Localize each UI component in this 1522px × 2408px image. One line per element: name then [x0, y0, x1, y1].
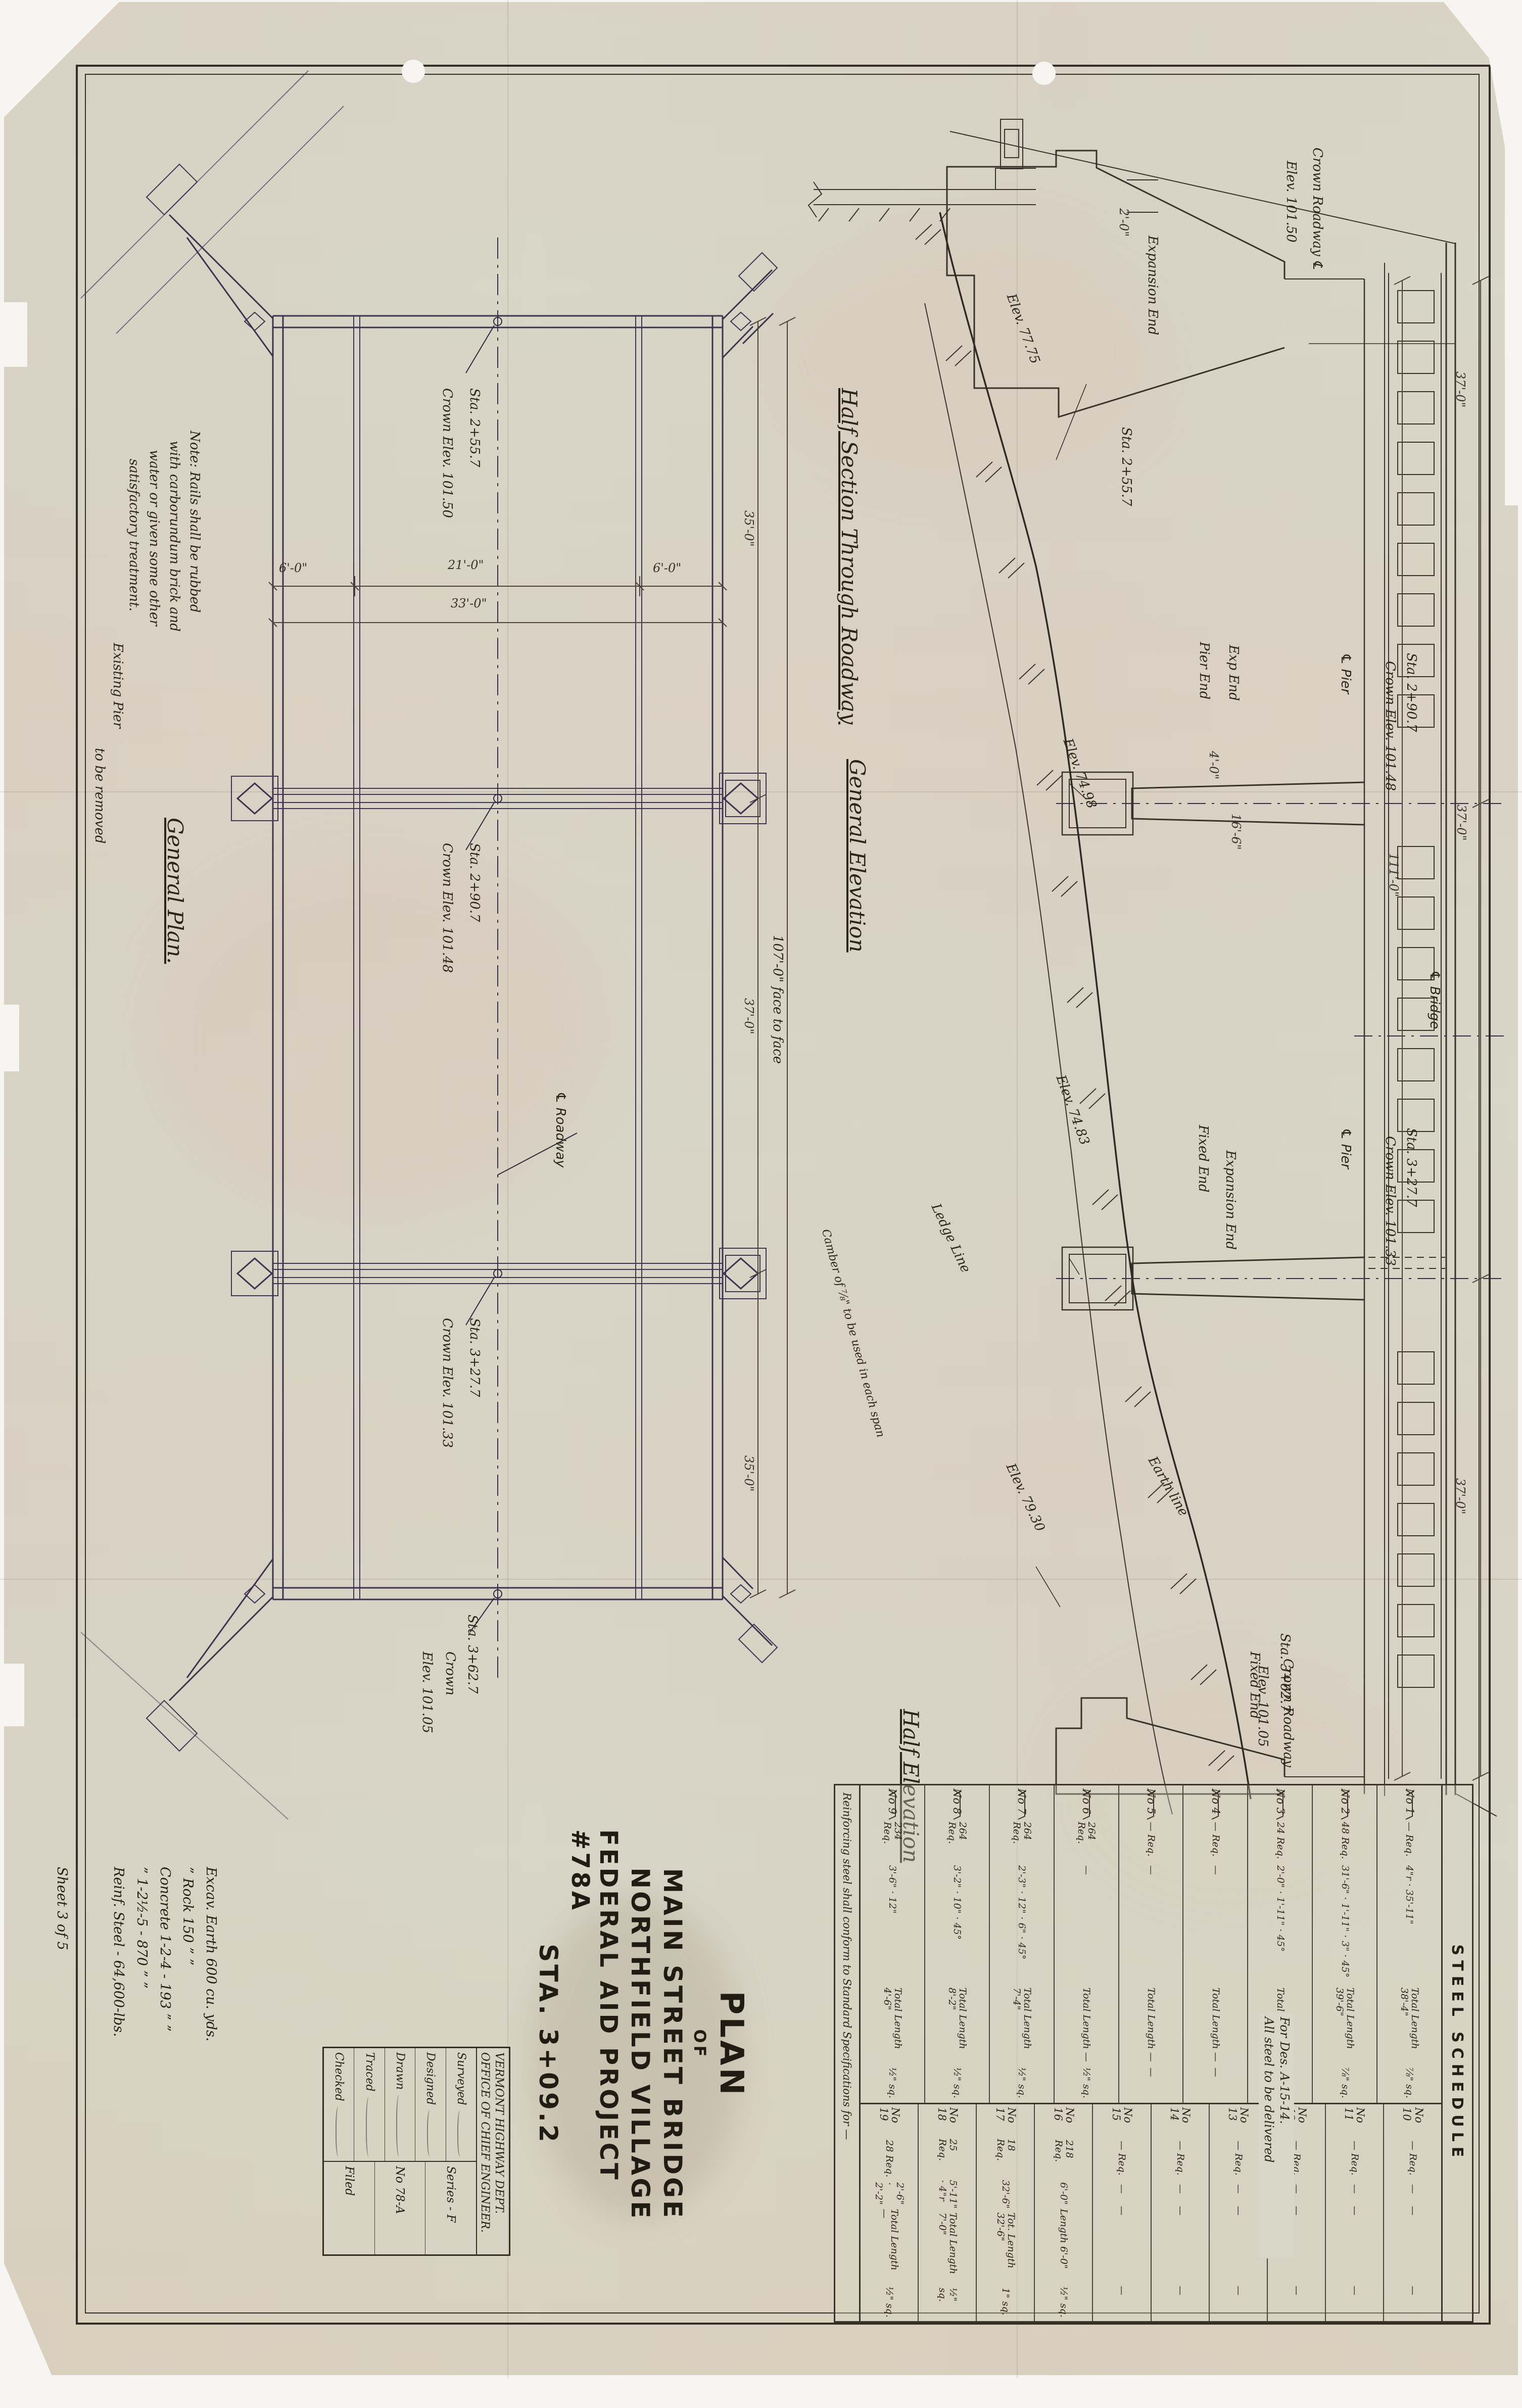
quantity-line: ” Rock 150 ” ” [180, 1867, 196, 2130]
agency-header: VERMONT HIGHWAY DEPT. OFFICE OF CHIEF EN… [476, 2048, 509, 2254]
bar-dimensions: 32'-6" [1000, 2180, 1011, 2209]
steel-schedule-row: No 19 28 Req. 2'-6" · 2'-2" Total Length… [861, 2104, 918, 2321]
plan-crown4-elev: Elev. 101.05 [419, 1651, 434, 1733]
bar-dimensions: — [1233, 2184, 1244, 2202]
agency-row-label: Traced [363, 2052, 376, 2092]
bar-number: No 11 [1343, 2107, 1366, 2137]
bar-size: — [1233, 2286, 1244, 2318]
steel-schedule-row: No 15 — Req. — — — [1092, 2104, 1150, 2321]
bar-number: No 17 [994, 2107, 1017, 2135]
agency-row-label: Surveyed [455, 2052, 467, 2105]
bar-size: ½" sq. [884, 2287, 894, 2318]
punch-hole [1032, 62, 1056, 85]
bar-size: ½" sq. [887, 2067, 897, 2100]
agency-file-column: Series - F No 78-A Filed [324, 2162, 476, 2254]
plan-sta4: Sta. 3+62.7 [465, 1615, 479, 1694]
drawing-sheet: Note: Rails shall be rubbed with carboru… [0, 0, 1522, 2408]
steel-schedule-body: No 1 — Req. 4"r · 35'-11" Total Length 3… [861, 1785, 1441, 2321]
bar-total-length: — [1175, 2206, 1185, 2282]
bar-shape-icon [1339, 1788, 1350, 1821]
bar-quantity: 28 Req. [884, 2140, 894, 2178]
bar-total-length: — [1407, 2206, 1418, 2282]
bar-dimensions: 2'-3" · 12" · 6" · 45° [1016, 1865, 1027, 1984]
pier1-dim2: 16'-6" [1229, 814, 1242, 850]
bar-total-length: Total Length — [1210, 1988, 1221, 2063]
agency-row: Traced [354, 2048, 384, 2161]
left-abutment-sta: Sta. 2+55.7 [1119, 427, 1133, 506]
bar-quantity: 18 Req. [995, 2139, 1016, 2176]
delivery-note: For Des. A-15-14. All steel to be delive… [1259, 2013, 1294, 2258]
steel-schedule-row: No 10 — Req. — — — [1383, 2104, 1441, 2321]
bar-size: ½" sq. [952, 2067, 962, 2100]
bar-total-length: Tot. Length 32'-6" [995, 2212, 1016, 2284]
bar-total-length: Total Length — [1081, 1988, 1091, 2063]
plan-crown4: Crown [443, 1651, 457, 1695]
delivery-note-line1: For Des. A-15-14. [1276, 2017, 1292, 2254]
agency-row: Designed [415, 2048, 445, 2161]
elev-dim-span-bot: 37'-0" [1454, 1478, 1466, 1515]
bar-size: — [1117, 2286, 1127, 2318]
bar-size: — [1407, 2286, 1418, 2318]
steel-schedule-row: No 16 218 Req. 6'-0" Length 6'-0" ½" sq. [1034, 2104, 1092, 2321]
bar-dimensions: — [1117, 2184, 1127, 2202]
bar-shape-icon [1404, 1788, 1415, 1821]
bar-quantity: 25 Req. [937, 2139, 958, 2176]
bar-quantity: 264 Req. [1076, 1822, 1097, 1861]
steel-schedule-table: STEEL SCHEDULE No 1 — Req. 4"r · 35'-11"… [834, 1784, 1473, 2323]
general-elevation-drawing [773, 61, 1511, 1829]
steel-schedule-row: No 2 48 Req. 31'-6" · 1'-11" · 3" · 45° … [1312, 1785, 1376, 2103]
steel-schedule-row: No 17 18 Req. 32'-6" Tot. Length 32'-6" … [976, 2104, 1034, 2321]
bar-number: No 18 [936, 2107, 959, 2135]
bar-quantity: 264 Req. [1011, 1822, 1032, 1861]
bar-total-length: Total Length 4'-6" [882, 1988, 903, 2063]
steel-schedule-row: No 7 264 Req. 2'-3" · 12" · 6" · 45° Tot… [989, 1785, 1054, 2103]
bar-quantity: 264 Req. [946, 1822, 968, 1861]
plan-dim-span3: 35'-0" [742, 1455, 755, 1492]
plan-dim-roadway: 21'-0" [448, 559, 484, 572]
agency-row: Checked [324, 2048, 354, 2161]
bar-number: No 14 [1168, 2107, 1192, 2137]
pier1-sta: Sta. 2+90.7 [1404, 653, 1418, 732]
half-section-title: Half Section Through Roadway [837, 388, 860, 724]
general-plan-title: General Plan. [163, 818, 186, 964]
steel-schedule-title: STEEL SCHEDULE [1441, 1785, 1472, 2321]
bar-shape-icon [1016, 1788, 1027, 1821]
title-line-station: STA. 3+09.2 [534, 1944, 563, 2144]
bar-total-length: Total Length — [1146, 1988, 1156, 2063]
plan-dim-overall: 107'-0" face to face [770, 935, 784, 1064]
bar-quantity: — Req. [1404, 1822, 1415, 1861]
title-line-plan: PLAN [712, 1991, 750, 2098]
signature-squiggle [366, 2097, 373, 2157]
pier2-sta: Sta. 3+27.7 [1404, 1128, 1418, 1207]
agency-row-label: Checked [332, 2052, 345, 2101]
bar-total-length: Total Length 39'-6" [1334, 1988, 1355, 2063]
bar-quantity: — Req. [1146, 1822, 1156, 1861]
bar-dimensions: — [1081, 1865, 1091, 1984]
bar-dimensions: 4"r · 35'-11" [1404, 1865, 1415, 1984]
bar-number: No 19 [878, 2107, 901, 2136]
bar-quantity: — Req. [1175, 2141, 1185, 2180]
bar-dimensions: 31'-6" · 1'-11" · 3" · 45° [1340, 1865, 1350, 1984]
crown-roadway-top: Crown Roadway ℄ [1310, 148, 1324, 269]
bar-dimensions: — [1175, 2184, 1185, 2202]
plan-sta2: Sta. 2+90.7 [467, 843, 481, 922]
bar-dimensions: — [1407, 2184, 1418, 2202]
delivery-note-line2: All steel to be delivered [1261, 2017, 1276, 2254]
bar-dimensions: 5'-11" · 4"r [937, 2180, 958, 2209]
bar-size: ½" sq. [1058, 2287, 1069, 2318]
steel-schedule-row: No 11 — Req. — — — [1325, 2104, 1383, 2321]
bar-total-length: — [1233, 2206, 1244, 2282]
pier1-cl: ℄ Pier [1338, 653, 1352, 694]
bar-number: No 10 [1401, 2107, 1424, 2137]
bar-dimensions: 2'-6" · 2'-2" [873, 2182, 905, 2205]
agency-signature-rows: Surveyed Designed Drawn Traced C [324, 2048, 476, 2162]
bar-total-length: Total Length 7'-4" [1011, 1988, 1032, 2063]
bar-dimensions: — [1349, 2184, 1360, 2202]
bar-quantity: — Req. [1349, 2141, 1360, 2180]
bar-quantity: — Req. [1233, 2141, 1244, 2180]
bar-size: ⅞" sq. [1340, 2067, 1350, 2100]
punch-hole [402, 60, 425, 83]
title-block: PLAN OF MAIN STREET BRIDGE NORTHFIELD VI… [546, 1829, 738, 2259]
bar-dimensions: 6'-0" [1058, 2182, 1069, 2205]
plan-dim-curb-right: 6'-0" [653, 562, 681, 575]
bar-quantity: 218 Req. [1053, 2140, 1074, 2178]
title-line-village: NORTHFIELD VILLAGE [626, 1867, 655, 2221]
pier1-dim1: 4'-0" [1207, 751, 1220, 779]
rails-note-line1: Note: Rails shall be rubbed [187, 431, 201, 612]
bar-size: ⅞" sq. [1404, 2067, 1415, 2100]
agency-row: Surveyed [446, 2048, 476, 2161]
agency-rows: Surveyed Designed Drawn Traced C [324, 2048, 476, 2254]
agency-office: OFFICE OF CHIEF ENGINEER. [478, 2052, 492, 2250]
agency-row-label: Drawn [394, 2052, 406, 2090]
sheet-number-note: Sheet 3 of 5 [54, 1867, 70, 1950]
steel-schedule-row: No 14 — Req. — — — [1151, 2104, 1209, 2321]
steel-schedule-row: No 9 234 Req. 3'-6" · 12" Total Length 4… [861, 1785, 924, 2103]
plan-dim-width: 33'-0" [451, 597, 487, 610]
bar-quantity: — Req. [1407, 2141, 1418, 2180]
bar-size: — [1291, 2286, 1302, 2318]
rails-note-line3: water or given some other [147, 450, 161, 626]
agency-filed: Filed [324, 2162, 374, 2254]
bar-shape-icon [1274, 1788, 1286, 1821]
bar-total-length: — [1349, 2206, 1360, 2282]
quantity-line: ” 1-2½-5 - 870 ” ” [134, 1867, 149, 2130]
signature-squiggle [427, 2110, 434, 2157]
quantity-line: Excav. Earth 600 cu. yds. [203, 1867, 218, 2130]
plan-crown2: Crown Elev. 101.48 [440, 843, 454, 973]
quantity-line: Concrete 1-2-4 - 193 ” ” [157, 1867, 172, 2130]
plan-dim-span2: 37'-0" [742, 998, 755, 1034]
steel-schedule-row: No 1 — Req. 4"r · 35'-11" Total Length 3… [1376, 1785, 1441, 2103]
existing-pier-note-line1: Existing Pier [110, 643, 124, 728]
crown-roadway-top-elev: Elev. 101.50 [1283, 161, 1298, 243]
reinforcing-note: Reinforcing steel shall conform to Stand… [835, 1785, 861, 2321]
elev-dim-span-mid: 37'-0" [1455, 805, 1467, 841]
plan-sta1: Sta. 2+55.7 [467, 388, 481, 467]
edge-notch [0, 1664, 24, 1726]
torn-edge-right [1505, 0, 1522, 505]
plan-crown1: Crown Elev. 101.50 [440, 388, 454, 518]
bar-size: 1" sq. [1000, 2288, 1011, 2318]
bar-quantity: 234 Req. [882, 1822, 903, 1861]
pier2-cl: ℄ Pier [1338, 1128, 1352, 1169]
agency-row: Drawn [385, 2048, 415, 2161]
elev-dim-span-top: 37'-0" [1454, 371, 1466, 408]
bar-number: No 16 [1052, 2107, 1075, 2136]
plan-sta3: Sta. 3+27.7 [467, 1318, 481, 1397]
elev-dim-overall: 111'-0" [1387, 853, 1400, 897]
title-line-project: FEDERAL AID PROJECT #78A [566, 1829, 623, 2259]
bar-size: — [1349, 2286, 1360, 2318]
bar-shape-icon [1210, 1788, 1221, 1821]
signature-squiggle [396, 2095, 403, 2157]
agency-row-label: Designed [424, 2052, 437, 2105]
steel-schedule-row: No 6 264 Req. — Total Length — ½" sq. [1054, 1785, 1118, 2103]
steel-schedule-row: No 18 25 Req. 5'-11" · 4"r Total Length … [918, 2104, 976, 2321]
steel-schedule-row: No 8 264 Req. 3'-2" · 10" · 45° Total Le… [924, 1785, 989, 2103]
plan-cl-roadway: ℄ Roadway [553, 1092, 567, 1168]
bar-size: ½" sq. [1016, 2067, 1027, 2100]
signature-squiggle [457, 2110, 464, 2157]
pier2-end-left: Fixed End [1196, 1125, 1210, 1193]
bar-quantity: — Req. [1210, 1822, 1221, 1861]
bar-quantity: 48 Req. [1340, 1822, 1350, 1861]
steel-schedule-group-b: No 10 — Req. — — — No 11 — Req. — — — No… [861, 2104, 1441, 2321]
bar-shape-icon [887, 1788, 898, 1821]
bar-dimensions: — [1210, 1865, 1221, 1984]
steel-schedule-row: No 13 — Req. — — — [1209, 2104, 1267, 2321]
bar-total-length: Total Length 8'-2" [946, 1988, 968, 2063]
plan-dim-span1: 35'-0" [742, 510, 755, 547]
bar-total-length: Total Length 7'-0" [937, 2212, 958, 2284]
bar-shape-icon [952, 1788, 963, 1821]
rails-note-line2: with carborundum brick and [167, 441, 181, 632]
plan-crown3: Crown Elev. 101.33 [440, 1318, 454, 1448]
quantity-line: Reinf. Steel - 64,600-lbs. [111, 1867, 126, 2130]
bar-shape-icon [1081, 1788, 1092, 1821]
bar-quantity: — Req. [1117, 2141, 1127, 2180]
left-abutment-end-label: Expansion End [1145, 235, 1159, 335]
bar-size: — [1175, 2286, 1185, 2318]
bar-number: No 13 [1226, 2107, 1250, 2137]
steel-schedule-row: No 4 — Req. — Total Length — — [1182, 1785, 1247, 2103]
cl-bridge: ℄ Bridge [1427, 970, 1441, 1029]
quantity-lines: Excav. Earth 600 cu. yds.” Rock 150 ” ”C… [111, 1867, 218, 2130]
agency-dept: VERMONT HIGHWAY DEPT. [492, 2052, 506, 2250]
pier1-end-left: Pier End [1197, 642, 1211, 699]
bar-total-length: Total Length — [879, 2209, 900, 2283]
agency-number: No 78-A [374, 2162, 425, 2254]
pier2-end-right: Expansion End [1223, 1150, 1237, 1250]
bar-dimensions: 3'-2" · 10" · 45° [952, 1865, 962, 1984]
bar-total-length: — [1117, 2206, 1127, 2282]
rails-note-line4: satisfactory treatment. [126, 459, 140, 611]
bar-total-length: Total Length 38'-4" [1399, 1988, 1420, 2063]
steel-schedule-group-a: No 1 — Req. 4"r · 35'-11" Total Length 3… [861, 1785, 1441, 2104]
agency-series: Series - F [425, 2162, 476, 2254]
bar-dimensions: — [1146, 1865, 1156, 1984]
bar-size: ½" sq. [937, 2288, 958, 2318]
pier2-crown: Crown Elev. 101.33 [1383, 1136, 1397, 1266]
signature-squiggle [336, 2106, 343, 2157]
bar-size: ½" sq. [1081, 2067, 1091, 2100]
crown-roadway-bottom-elev: Elev. 101.05 [1255, 1665, 1269, 1747]
bar-dimensions: 2'-0" · 1'-11" · 45° [1275, 1865, 1286, 1984]
bottom-margin [0, 2378, 1522, 2408]
edge-notch [0, 1005, 19, 1071]
bar-shape-icon [1146, 1788, 1157, 1821]
bar-number: No 15 [1110, 2107, 1133, 2137]
bar-dimensions: 3'-6" · 12" [887, 1865, 897, 1984]
general-elevation-title: General Elevation [845, 759, 868, 953]
crown-roadway-bottom: Crown Roadway [1280, 1659, 1295, 1767]
left-abutment-dim: 2'-0" [1117, 208, 1130, 237]
pier1-end-right: Exp End [1226, 645, 1240, 701]
title-line-bridge: MAIN STREET BRIDGE [658, 1868, 687, 2221]
existing-pier-note-line2: to be removed [92, 748, 106, 844]
bar-quantity: 24 Req. [1275, 1822, 1286, 1861]
edge-notch [0, 302, 27, 367]
plan-dim-curb-left: 6'-0" [279, 562, 307, 575]
title-line-of: OF [690, 2029, 709, 2059]
bar-size: — [1146, 2067, 1156, 2100]
bar-total-length: Length 6'-0" [1058, 2209, 1069, 2283]
quantities-block: VERMONT HIGHWAY DEPT. OFFICE OF CHIEF EN… [40, 1860, 510, 2259]
agency-box: VERMONT HIGHWAY DEPT. OFFICE OF CHIEF EN… [322, 2047, 510, 2256]
pier1-crown: Crown Elev. 101.48 [1383, 661, 1397, 791]
steel-schedule-row: No 5 — Req. — Total Length — — [1118, 1785, 1183, 2103]
bar-size: — [1210, 2067, 1221, 2100]
